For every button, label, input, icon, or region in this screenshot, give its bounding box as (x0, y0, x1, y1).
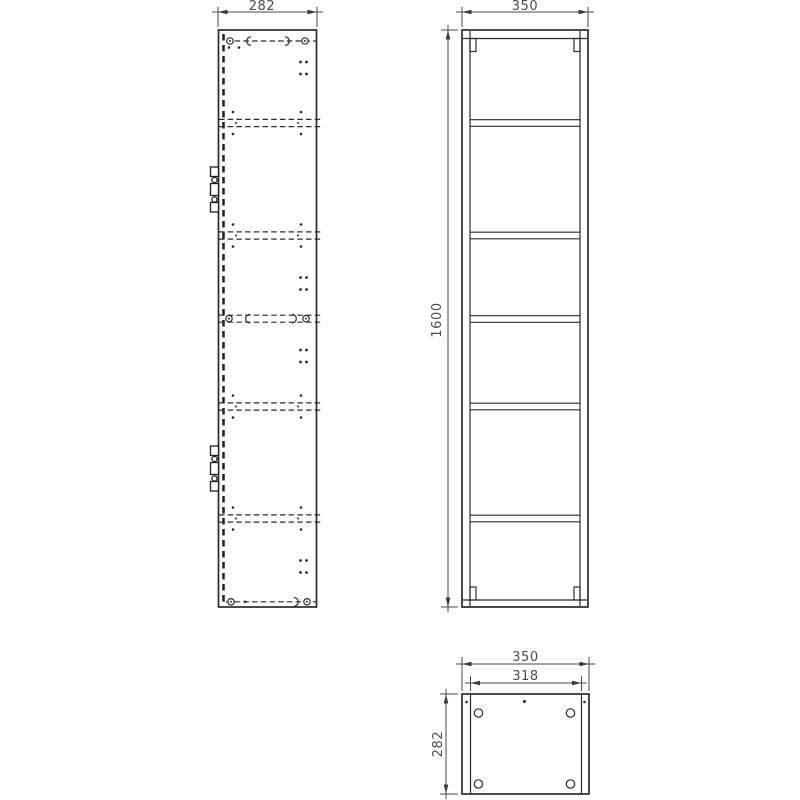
shelf-pin-hole (300, 223, 303, 226)
cam-pin-icon (228, 318, 230, 320)
fixing-hole (474, 780, 482, 788)
bottom-depth-label: 282 (431, 731, 446, 758)
shelf-pin-hole (300, 528, 303, 531)
shelf-pin-hole (232, 506, 235, 509)
shelf-pin-hole (232, 394, 235, 397)
dimension-arrow-icon (462, 10, 472, 15)
mounting-hole-cluster (299, 349, 308, 364)
dimension-arrow-icon (444, 694, 449, 704)
drill-hole (523, 700, 526, 703)
middle-connector-row (219, 314, 321, 323)
dimension-arrow-icon (308, 10, 318, 15)
shelf-pin-hole (232, 528, 235, 531)
front-view: 350 1600 (430, 0, 594, 612)
drill-hole (583, 701, 586, 704)
fixing-hole (474, 709, 482, 717)
shelf (470, 403, 580, 410)
cam-pin-icon (229, 40, 231, 42)
shelf-position-row (219, 506, 321, 531)
hinge-plate-lower (211, 446, 219, 491)
hanger-bracket (574, 39, 580, 52)
dimension-front-height: 1600 (430, 25, 458, 612)
shelf (470, 232, 580, 239)
carcass-outline (462, 30, 588, 607)
side-width-label: 282 (249, 0, 276, 14)
bottom-view: 350 318 282 (431, 650, 595, 799)
bottom-connector-row (226, 598, 316, 607)
shelf-pin-hole (300, 111, 303, 114)
fixing-hole (566, 709, 574, 717)
shelf-pin-hole (300, 394, 303, 397)
top-connector-row (226, 37, 316, 49)
dimension-arrow-icon (572, 681, 582, 686)
shelf-pin-hole (232, 416, 235, 419)
dimension-bottom-depth: 282 (431, 689, 458, 799)
shelf (470, 316, 580, 323)
cam-pin-icon (306, 601, 308, 603)
shelf-pin-hole (300, 506, 303, 509)
drill-hole (244, 601, 247, 604)
cam-pin-icon (230, 601, 232, 603)
shelf-pin-hole (300, 416, 303, 419)
shelf-pin-hole (232, 245, 235, 248)
hinge-screw-hole (212, 197, 217, 202)
drill-hole (228, 46, 231, 49)
drill-hole (238, 46, 241, 49)
mounting-hole-cluster (299, 61, 308, 76)
dimension-arrow-icon (471, 681, 481, 686)
shelf (470, 515, 580, 522)
shelf-pin-hole (232, 133, 235, 136)
hinge-screw-hole (212, 456, 217, 461)
bottom-bracket (574, 587, 580, 600)
dimension-front-width: 350 (456, 0, 594, 27)
hanger-bracket (470, 39, 476, 52)
dimension-arrow-icon (218, 10, 228, 15)
fixing-hole (566, 780, 574, 788)
shelf-pin-hole (232, 111, 235, 114)
shelf (470, 120, 580, 127)
bottom-bracket (470, 587, 476, 600)
bottom-outer-width-label: 350 (512, 650, 539, 665)
mounting-hole-cluster (299, 276, 308, 291)
mounting-hole-cluster (299, 559, 308, 574)
shelf-position-row (219, 394, 321, 419)
dimension-arrow-icon (444, 785, 449, 795)
front-height-label: 1600 (430, 302, 445, 337)
dimension-side-width: 282 (212, 0, 323, 27)
dimension-arrow-icon (446, 30, 451, 40)
dimension-arrow-icon (446, 598, 451, 608)
shelf-position-row (219, 223, 321, 248)
hinge-screw-hole (212, 177, 217, 182)
side-panel-outline (219, 30, 317, 607)
shelf-pin-hole (232, 223, 235, 226)
shelf-pin-hole (300, 245, 303, 248)
shelf-position-row (219, 111, 321, 136)
front-width-label: 350 (512, 0, 539, 14)
bottom-inner-width-label: 318 (512, 669, 539, 684)
technical-drawing-page: 282 (0, 0, 800, 800)
drill-hole (465, 701, 468, 704)
dimension-bottom-inner-width: 318 (465, 669, 587, 691)
dimension-arrow-icon (462, 662, 472, 667)
hinge-plate-upper (211, 167, 219, 212)
hinge-screw-hole (212, 476, 217, 481)
cabinet-drawing-canvas: 282 (0, 0, 800, 800)
shelf-pin-hole (300, 133, 303, 136)
cam-pin-icon (305, 318, 307, 320)
dimension-arrow-icon (579, 10, 589, 15)
dimension-arrow-icon (580, 662, 590, 667)
cam-pin-icon (304, 40, 306, 42)
side-view: 282 (211, 0, 324, 607)
